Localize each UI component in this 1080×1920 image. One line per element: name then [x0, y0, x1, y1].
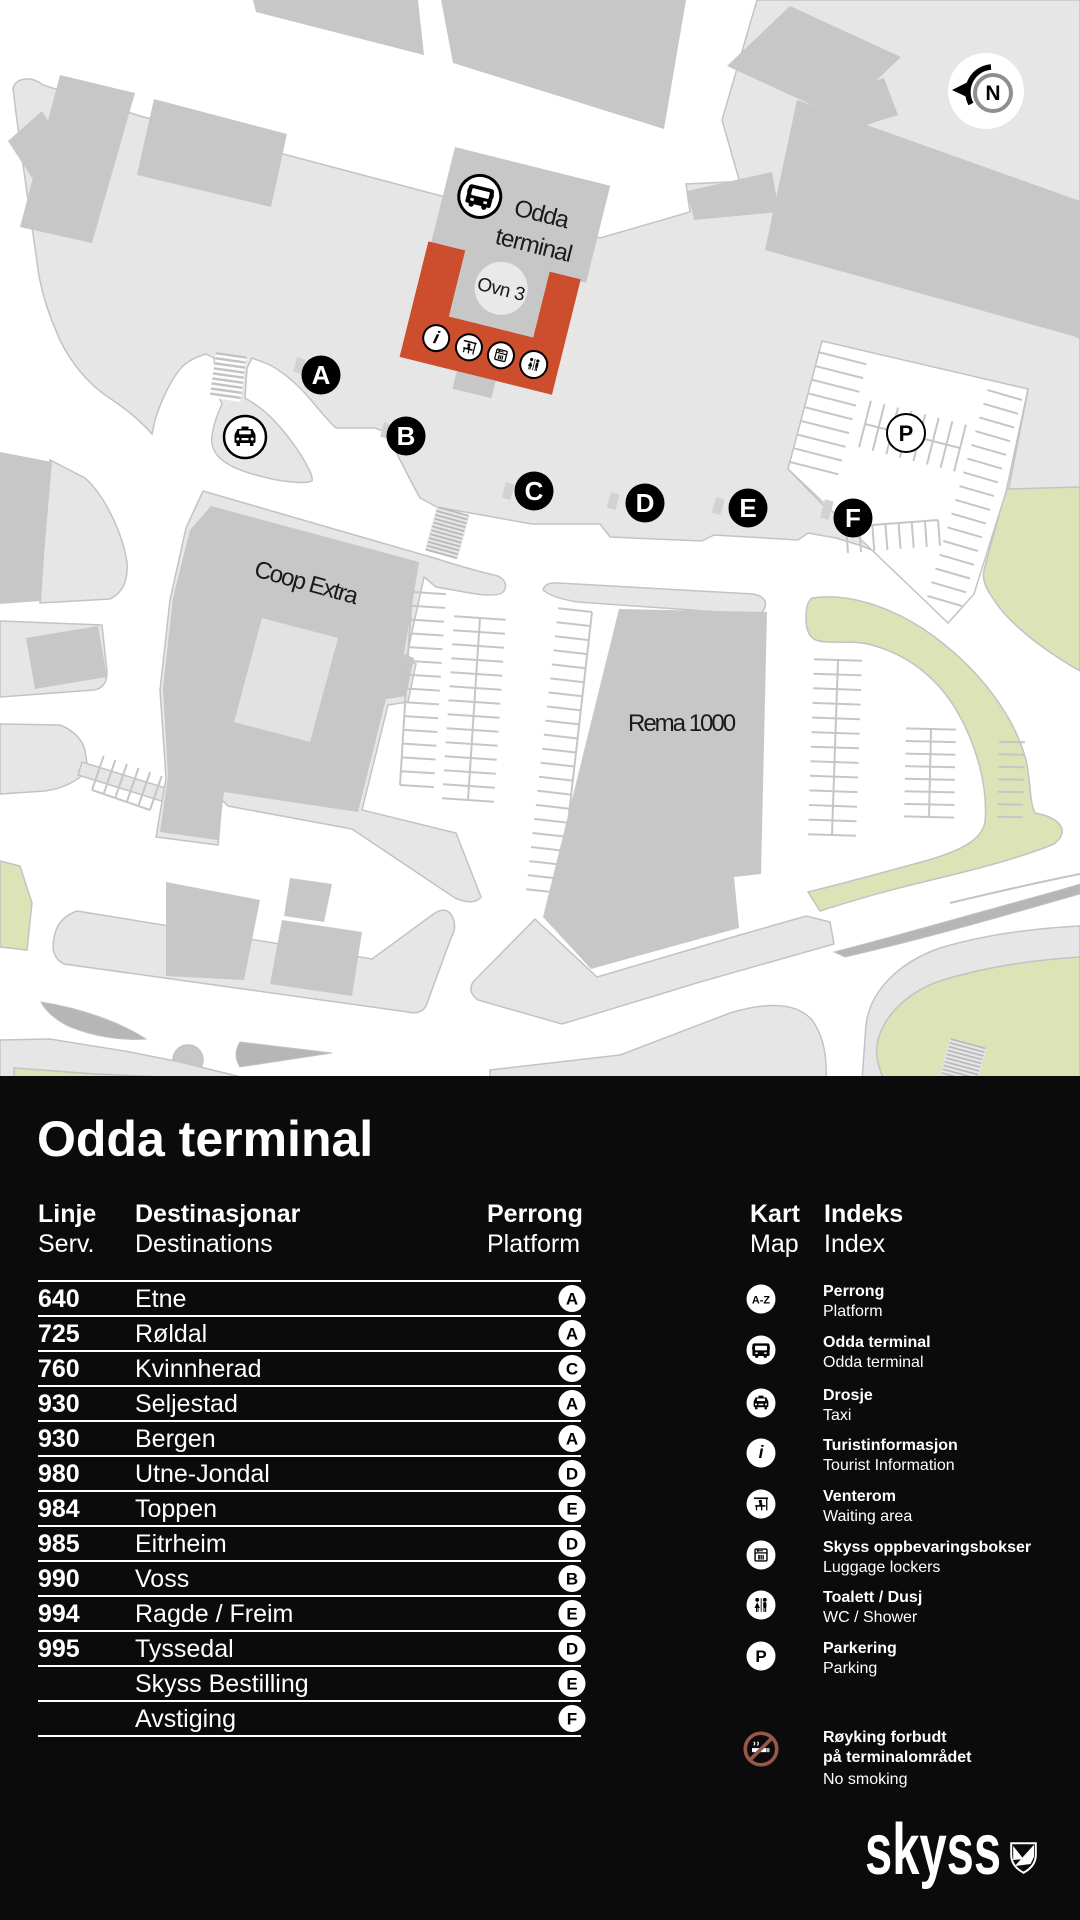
svg-text:A: A: [566, 1325, 578, 1344]
svg-text:Kvinnherad: Kvinnherad: [135, 1355, 261, 1383]
svg-text:No smoking: No smoking: [823, 1771, 907, 1788]
svg-text:Odda terminal: Odda terminal: [823, 1354, 924, 1371]
svg-text:C: C: [566, 1360, 578, 1379]
svg-text:D: D: [566, 1535, 578, 1554]
svg-text:Index: Index: [824, 1230, 886, 1258]
svg-text:C: C: [525, 476, 544, 506]
svg-text:Skyss Bestilling: Skyss Bestilling: [135, 1670, 309, 1698]
svg-text:Map: Map: [750, 1230, 799, 1258]
svg-text:Tourist Information: Tourist Information: [823, 1457, 955, 1474]
svg-text:930: 930: [38, 1390, 80, 1418]
svg-text:Kart: Kart: [750, 1200, 801, 1228]
svg-text:A: A: [566, 1395, 578, 1414]
svg-text:Odda terminal: Odda terminal: [37, 1111, 373, 1167]
svg-text:A: A: [566, 1290, 578, 1309]
svg-text:Odda terminal: Odda terminal: [823, 1334, 931, 1351]
svg-text:Parkering: Parkering: [823, 1640, 897, 1657]
svg-text:Venterom: Venterom: [823, 1488, 896, 1505]
svg-text:E: E: [566, 1605, 577, 1624]
svg-text:B: B: [566, 1570, 578, 1589]
svg-text:på terminalområdet: på terminalområdet: [823, 1748, 972, 1766]
svg-text:E: E: [739, 493, 756, 523]
svg-text:760: 760: [38, 1355, 80, 1383]
svg-text:P: P: [899, 421, 914, 446]
svg-text:Skyss oppbevaringsbokser: Skyss oppbevaringsbokser: [823, 1539, 1031, 1556]
svg-text:Bergen: Bergen: [135, 1425, 216, 1453]
svg-text:E: E: [566, 1675, 577, 1694]
svg-text:skyss: skyss: [865, 1810, 1001, 1891]
svg-text:Rema 1000: Rema 1000: [628, 710, 736, 737]
svg-text:990: 990: [38, 1565, 80, 1593]
svg-text:Taxi: Taxi: [823, 1407, 851, 1424]
svg-text:Tyssedal: Tyssedal: [135, 1635, 234, 1663]
svg-text:Røyking forbudt: Røyking forbudt: [823, 1729, 947, 1746]
svg-text:Toalett / Dusj: Toalett / Dusj: [823, 1589, 922, 1606]
svg-text:Serv.: Serv.: [38, 1230, 95, 1258]
svg-text:E: E: [566, 1500, 577, 1519]
svg-text:Luggage lockers: Luggage lockers: [823, 1559, 940, 1576]
svg-text:Seljestad: Seljestad: [135, 1390, 238, 1418]
svg-text:D: D: [566, 1465, 578, 1484]
svg-text:Parking: Parking: [823, 1660, 877, 1677]
svg-text:A: A: [312, 360, 331, 390]
svg-text:Destinations: Destinations: [135, 1230, 273, 1258]
svg-text:Perrong: Perrong: [487, 1200, 583, 1228]
svg-text:984: 984: [38, 1495, 80, 1523]
svg-text:994: 994: [38, 1600, 80, 1628]
svg-text:Toppen: Toppen: [135, 1495, 217, 1523]
svg-text:D: D: [566, 1640, 578, 1659]
svg-text:Utne-Jondal: Utne-Jondal: [135, 1460, 270, 1488]
svg-text:F: F: [567, 1710, 577, 1729]
svg-text:995: 995: [38, 1635, 80, 1663]
svg-text:640: 640: [38, 1285, 80, 1313]
svg-text:A: A: [566, 1430, 578, 1449]
svg-text:B: B: [397, 421, 416, 451]
svg-text:Etne: Etne: [135, 1285, 186, 1313]
svg-text:Linje: Linje: [38, 1200, 96, 1228]
svg-text:725: 725: [38, 1320, 80, 1348]
svg-text:Avstiging: Avstiging: [135, 1705, 236, 1733]
svg-text:N: N: [985, 82, 1000, 105]
svg-text:930: 930: [38, 1425, 80, 1453]
svg-text:Waiting area: Waiting area: [823, 1508, 912, 1525]
svg-text:980: 980: [38, 1460, 80, 1488]
svg-text:985: 985: [38, 1530, 80, 1558]
svg-text:Indeks: Indeks: [824, 1200, 903, 1228]
svg-text:F: F: [845, 503, 861, 533]
svg-text:Platform: Platform: [487, 1230, 580, 1258]
svg-text:Eitrheim: Eitrheim: [135, 1530, 227, 1558]
svg-text:Voss: Voss: [135, 1565, 189, 1593]
svg-text:Drosje: Drosje: [823, 1387, 873, 1404]
svg-text:Ragde / Freim: Ragde / Freim: [135, 1600, 293, 1628]
svg-text:Turistinformasjon: Turistinformasjon: [823, 1437, 958, 1454]
svg-text:Perrong: Perrong: [823, 1283, 884, 1300]
svg-text:WC / Shower: WC / Shower: [823, 1609, 918, 1626]
svg-text:Røldal: Røldal: [135, 1320, 207, 1348]
svg-text:D: D: [636, 488, 655, 518]
svg-text:Platform: Platform: [823, 1303, 883, 1320]
svg-text:Destinasjonar: Destinasjonar: [135, 1200, 301, 1228]
